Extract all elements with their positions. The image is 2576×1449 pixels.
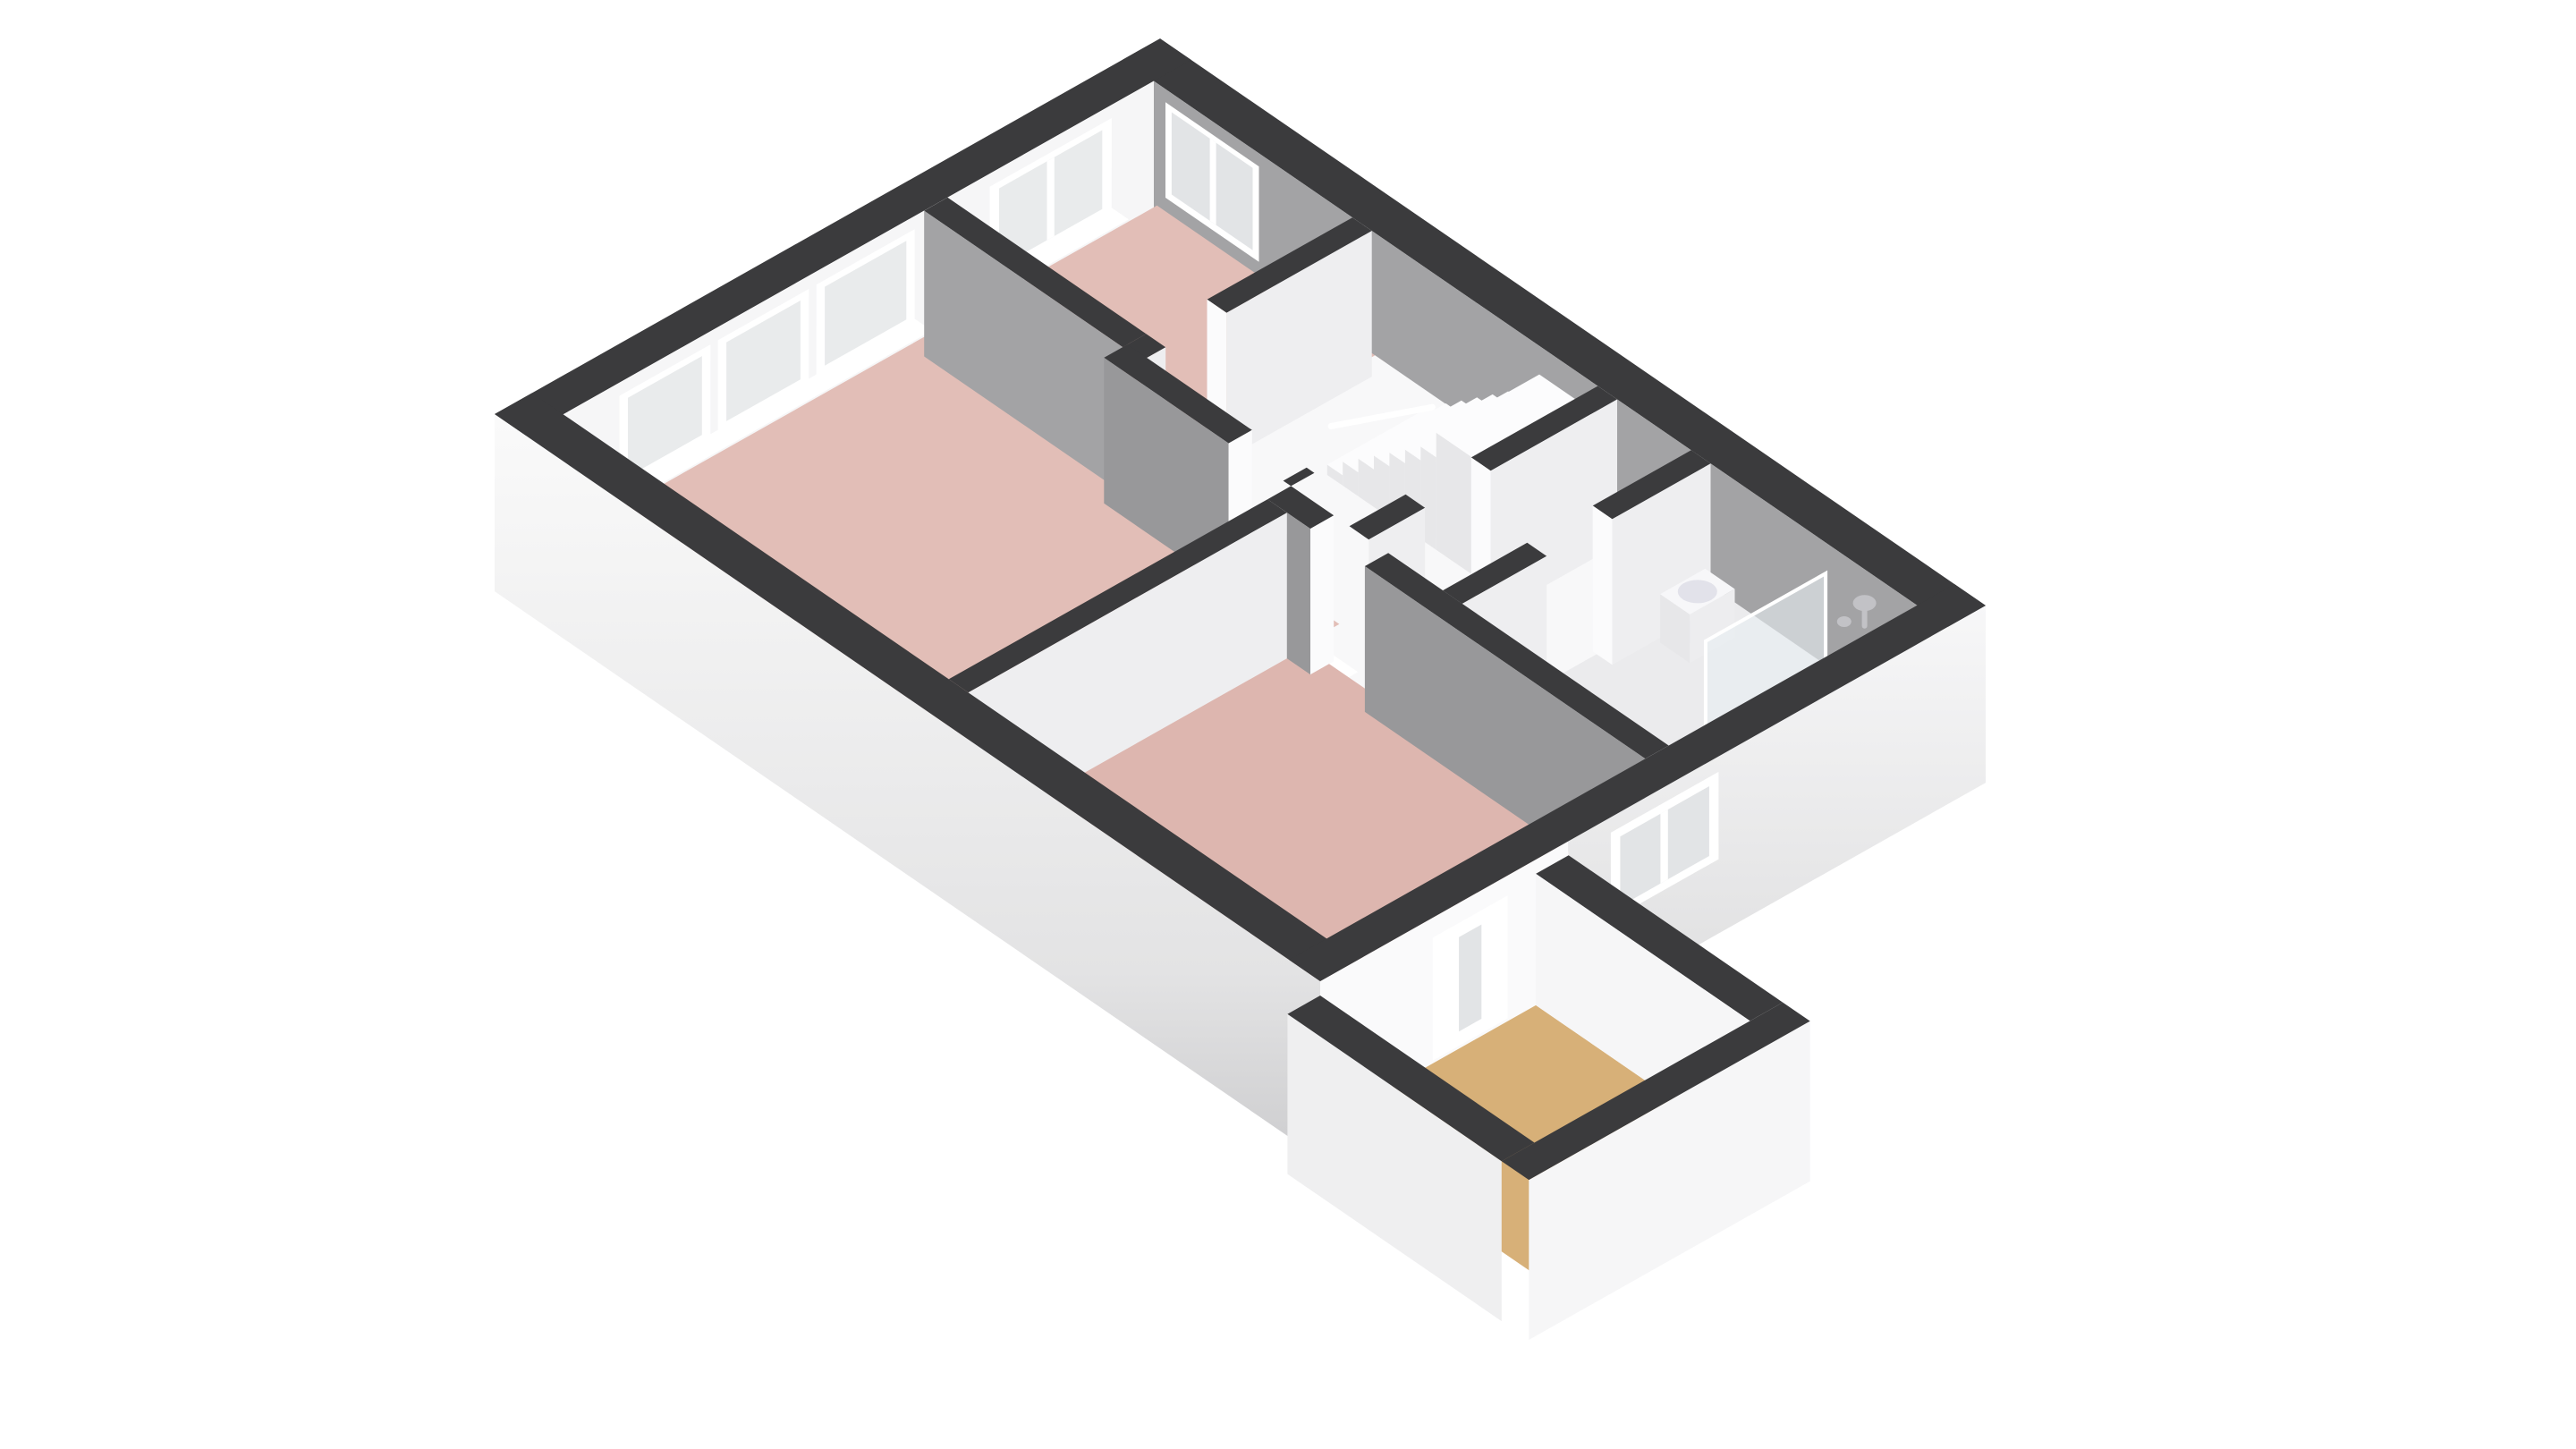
shower-head [1853,595,1877,611]
washbasin-bowl [1678,580,1717,603]
door-bathroom-jamb [1593,505,1613,665]
window-bedroom-mullion [1047,157,1055,241]
window-se-mullion [1660,809,1667,884]
shower-knob [1837,616,1851,627]
floorplan-canvas [0,0,2576,1449]
floorplan-3d-rendering [0,0,2576,1449]
window-ne-mullion [1210,139,1216,225]
door-backroom-jamb [1310,515,1334,674]
balcony-door-glass [1459,925,1481,1032]
